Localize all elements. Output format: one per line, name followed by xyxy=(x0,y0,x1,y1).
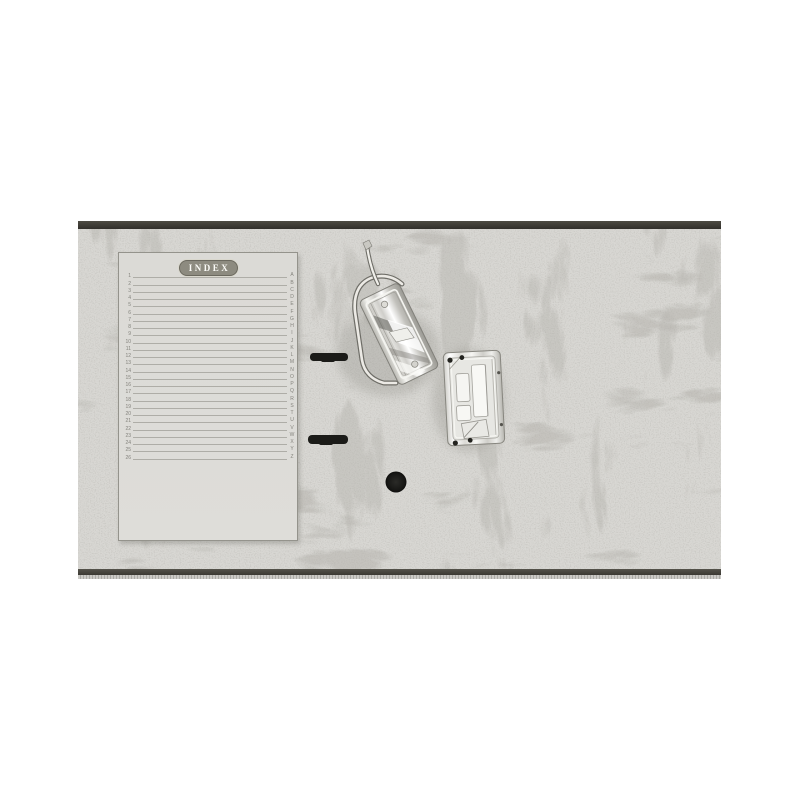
spine-slot-bottom xyxy=(308,435,348,445)
product-photo: INDEX 1234567891011121314151617181920212… xyxy=(0,0,800,800)
rod-tip xyxy=(363,240,372,250)
spine-hole xyxy=(386,472,407,493)
spine-slot-top xyxy=(310,353,348,362)
plate-stamp-small xyxy=(456,405,471,421)
mechanism-base-plate xyxy=(443,350,505,446)
plate-stamp-left xyxy=(456,373,470,402)
hardware-layer xyxy=(0,0,800,800)
